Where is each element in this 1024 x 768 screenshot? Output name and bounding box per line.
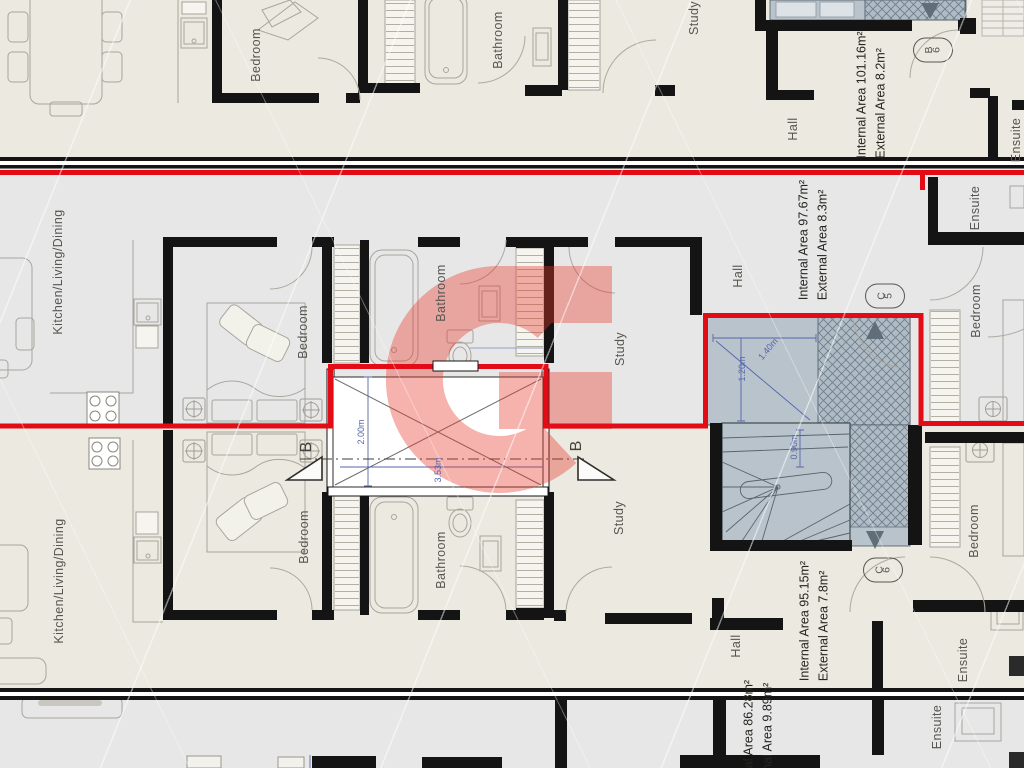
floor-plan-drawing xyxy=(0,0,1024,768)
floor-plan-canvas: BedroomBathroomStudyHallEnsuiteKitchen/L… xyxy=(0,0,1024,768)
section-arrow-right-icon xyxy=(578,457,614,480)
stair-cores xyxy=(707,0,966,549)
lightwell-door-gap xyxy=(433,361,478,371)
